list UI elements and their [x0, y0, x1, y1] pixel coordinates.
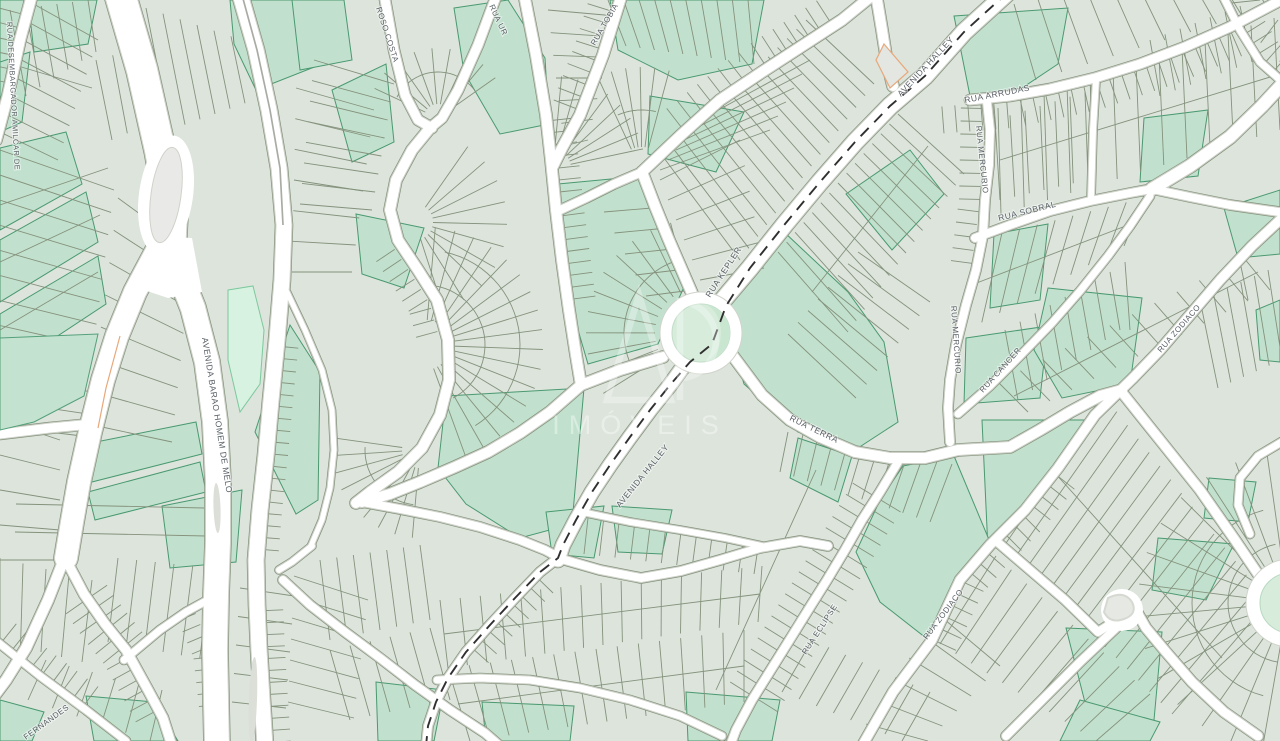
svg-text:IMÓVEIS: IMÓVEIS	[552, 409, 728, 440]
